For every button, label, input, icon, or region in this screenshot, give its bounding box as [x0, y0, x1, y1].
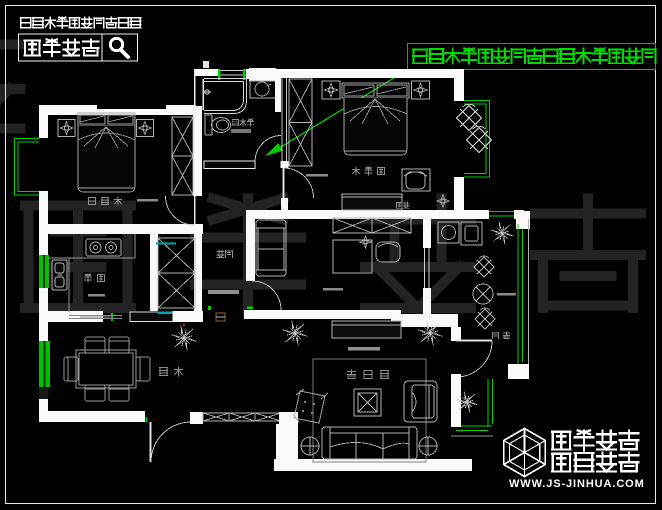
svg-text:WWW.JS-JINHUA.COM: WWW.JS-JINHUA.COM	[509, 478, 645, 490]
